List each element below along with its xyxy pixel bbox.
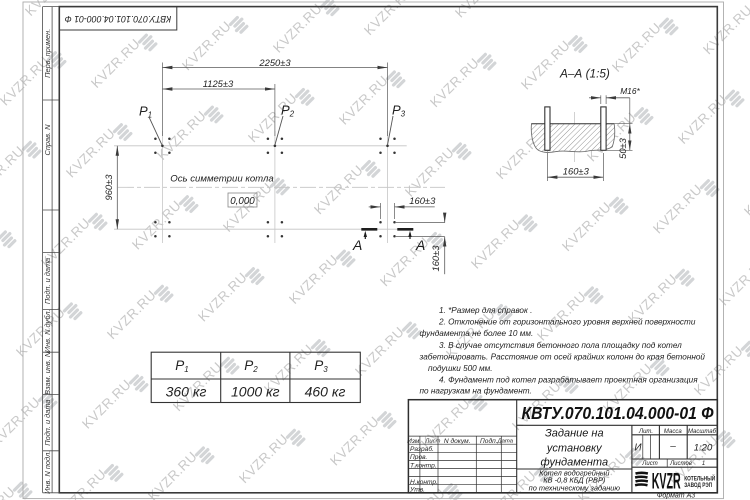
svg-text:960±3: 960±3 (103, 174, 114, 201)
svg-text:1125±3: 1125±3 (203, 78, 234, 89)
svg-text:Листов: Листов (669, 461, 692, 467)
svg-text:Взам. инв. N: Взам. инв. N (43, 351, 52, 395)
svg-text:ЗАВОД РЭП: ЗАВОД РЭП (684, 482, 712, 489)
svg-text:по нагрузкам на фундамент.: по нагрузкам на фундамент. (420, 387, 532, 396)
svg-text:А–А (1:5): А–А (1:5) (559, 67, 610, 81)
svg-text:Изм.: Изм. (407, 438, 421, 445)
svg-text:Дата: Дата (497, 439, 514, 445)
svg-text:фундамента не более 10 мм.: фундамента не более 10 мм. (420, 329, 534, 338)
svg-text:Справ. N: Справ. N (43, 124, 52, 156)
svg-text:3. В случае отсутствия бет: 3. В случае отсутствия бетонного пола пл… (439, 341, 682, 350)
svg-text:1000 кг: 1000 кг (231, 384, 280, 400)
svg-text:Перв. примен.: Перв. примен. (43, 29, 52, 78)
svg-text:2. Отклонение от горизонтал: 2. Отклонение от горизонтального уровня … (438, 318, 696, 327)
svg-text:Масштаб: Масштаб (688, 429, 717, 435)
svg-text:Утв.: Утв. (409, 487, 425, 494)
svg-text:Разраб.: Разраб. (410, 445, 434, 453)
svg-text:360 кг: 360 кг (166, 384, 207, 400)
svg-text:2250±3: 2250±3 (258, 57, 291, 68)
svg-text:50±3: 50±3 (617, 137, 628, 159)
svg-text:А: А (352, 237, 362, 253)
svg-text:1: 1 (702, 461, 705, 467)
svg-text:1. *Размер для справок .: 1. *Размер для справок . (439, 306, 532, 315)
svg-text:Масса: Масса (664, 429, 682, 435)
svg-text:Лист: Лист (641, 461, 657, 467)
svg-text:160±3: 160±3 (409, 195, 436, 206)
svg-text:И: И (634, 442, 642, 453)
svg-text:КВТУ.070.101.04.000-01 Ф: КВТУ.070.101.04.000-01 Ф (65, 14, 172, 24)
svg-text:0,000: 0,000 (230, 196, 255, 207)
svg-text:Подп. и дата: Подп. и дата (43, 399, 52, 445)
svg-text:Инв. N подл.: Инв. N подл. (43, 451, 52, 494)
svg-text:Т.контр.: Т.контр. (410, 462, 437, 469)
svg-text:Лист: Лист (424, 439, 440, 445)
svg-text:Н.контр.: Н.контр. (410, 479, 438, 486)
svg-text:Формат А3: Формат А3 (657, 493, 695, 500)
svg-text:160±3: 160±3 (563, 166, 590, 177)
svg-text:160±3: 160±3 (430, 245, 441, 272)
svg-text:Лит.: Лит. (638, 429, 653, 435)
svg-text:KVZR: KVZR (652, 468, 681, 493)
svg-text:по техническому заданию: по техническому заданию (529, 483, 621, 492)
svg-text:–: – (669, 441, 676, 452)
svg-text:N докум.: N докум. (444, 437, 471, 445)
svg-text:Задание на: Задание на (545, 428, 604, 440)
svg-text:фундамента: фундамента (541, 457, 609, 469)
svg-text:Инв. N дубл.: Инв. N дубл. (43, 309, 52, 352)
svg-text:подушки 500 мм.: подушки 500 мм. (428, 364, 493, 373)
svg-text:А: А (415, 237, 425, 253)
svg-text:Ось симметрии котла: Ось симметрии котла (170, 174, 273, 185)
svg-text:M16*: M16* (620, 86, 640, 96)
svg-text:забетонировать. Расстояние о: забетонировать. Расстояние от осей крайн… (419, 353, 706, 362)
svg-text:Пров.: Пров. (410, 454, 428, 461)
svg-text:КВТУ.070.101.04.000-01 Ф: КВТУ.070.101.04.000-01 Ф (522, 403, 714, 423)
svg-text:460 кг: 460 кг (305, 384, 346, 400)
svg-text:4. Фундамент под котел раз: 4. Фундамент под котел разрабатывает про… (439, 376, 698, 385)
svg-text:Подп. и дата: Подп. и дата (43, 258, 52, 304)
svg-text:установку: установку (546, 443, 603, 455)
svg-text:Подп.: Подп. (480, 437, 498, 445)
svg-text:1:20: 1:20 (694, 442, 713, 453)
